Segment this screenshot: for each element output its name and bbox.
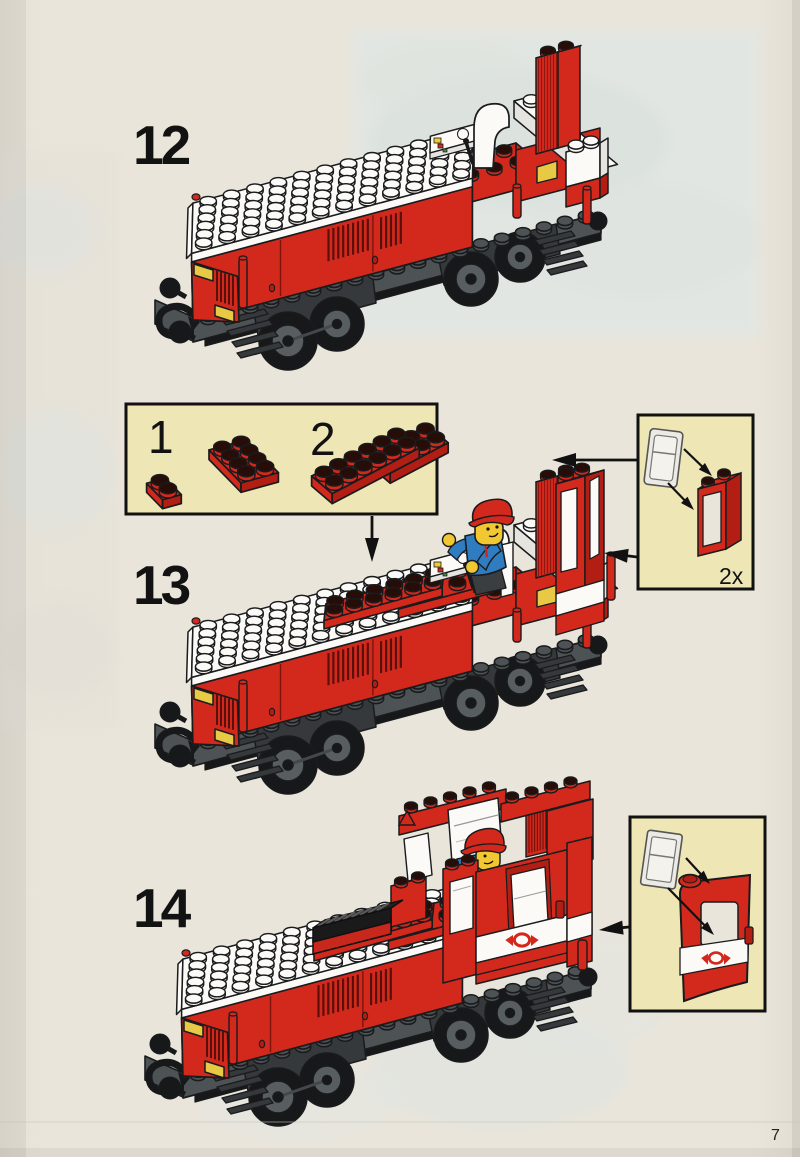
svg-text:14: 14 [133,877,192,939]
svg-text:2x: 2x [719,563,744,589]
svg-text:2: 2 [310,413,336,465]
svg-text:7: 7 [771,1127,780,1144]
svg-text:12: 12 [133,114,190,176]
svg-text:1: 1 [148,411,174,463]
svg-text:13: 13 [133,554,190,616]
